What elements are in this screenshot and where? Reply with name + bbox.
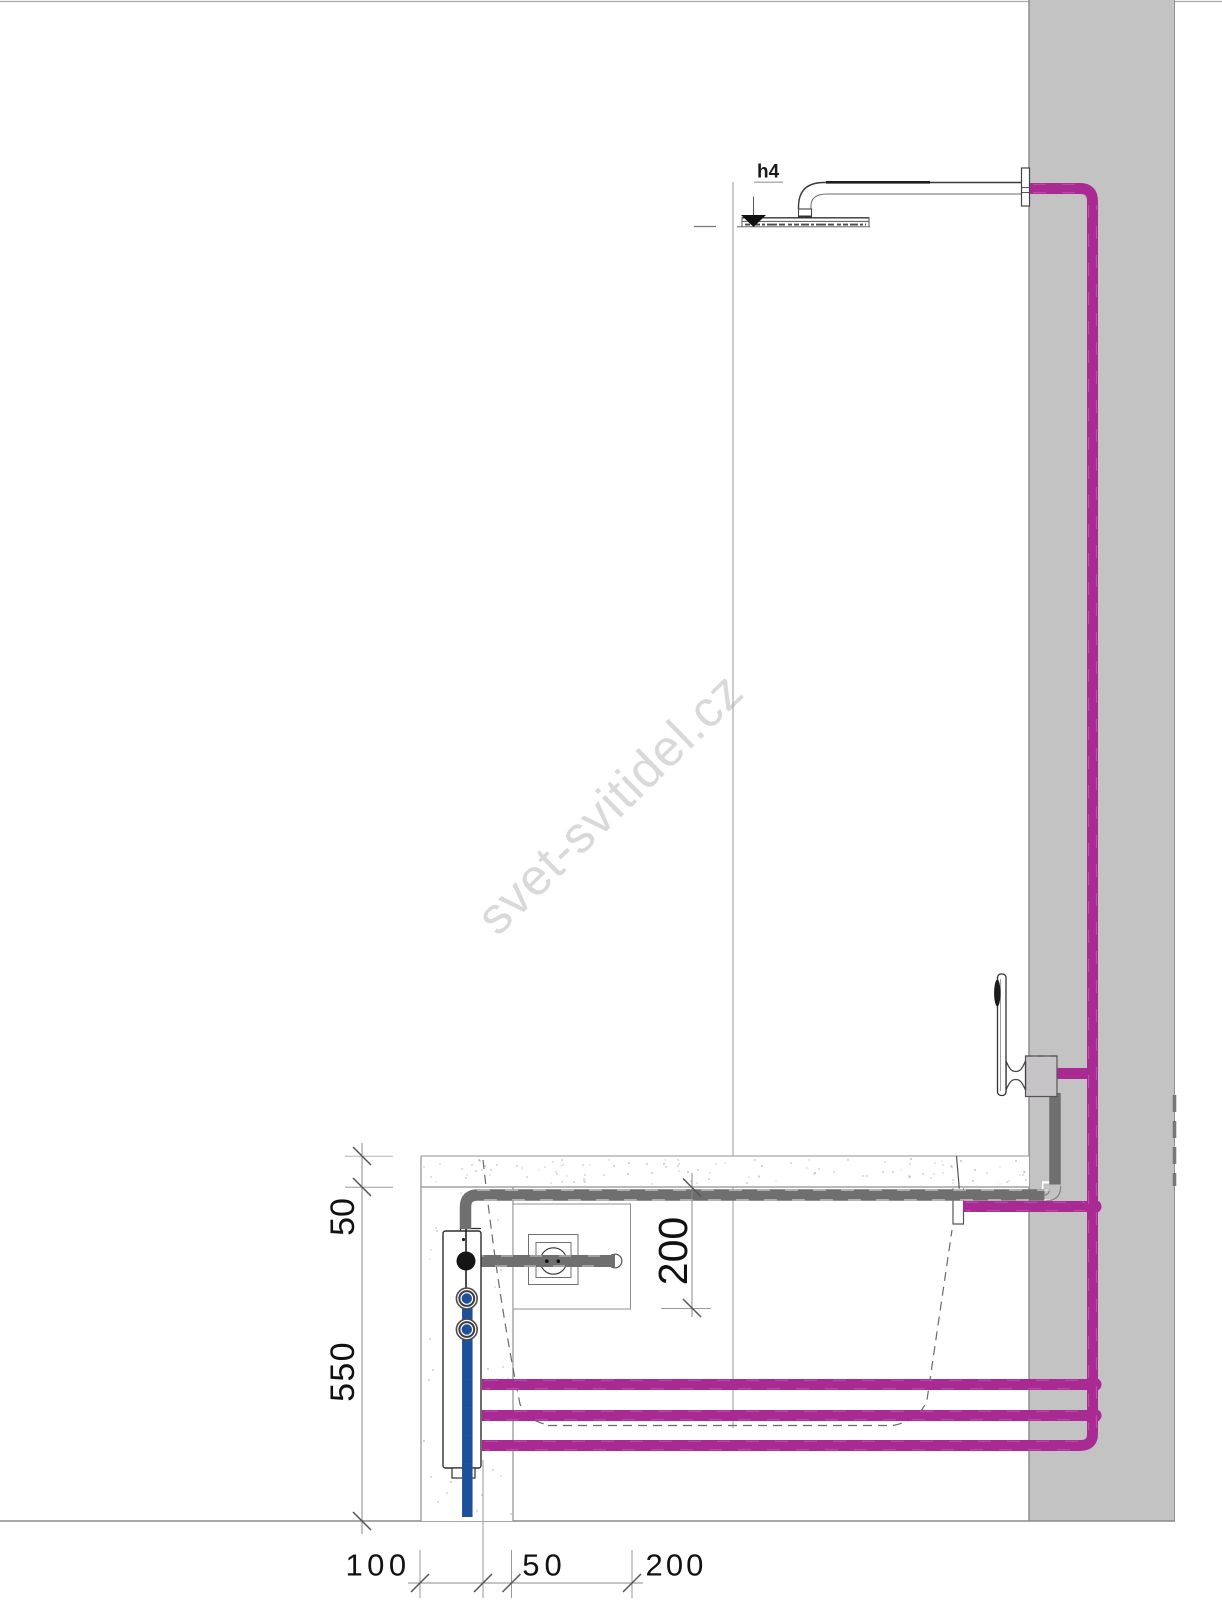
svg-text:50: 50 [324, 1198, 362, 1236]
svg-text:200: 200 [645, 1548, 706, 1583]
svg-text:550: 550 [324, 1341, 362, 1402]
svg-text:100: 100 [346, 1548, 411, 1583]
svg-text:h4: h4 [757, 162, 780, 183]
svg-text:200: 200 [650, 1217, 696, 1285]
svg-text:svet-svitidel.cz: svet-svitidel.cz [465, 662, 754, 946]
svg-text:50: 50 [522, 1548, 566, 1583]
